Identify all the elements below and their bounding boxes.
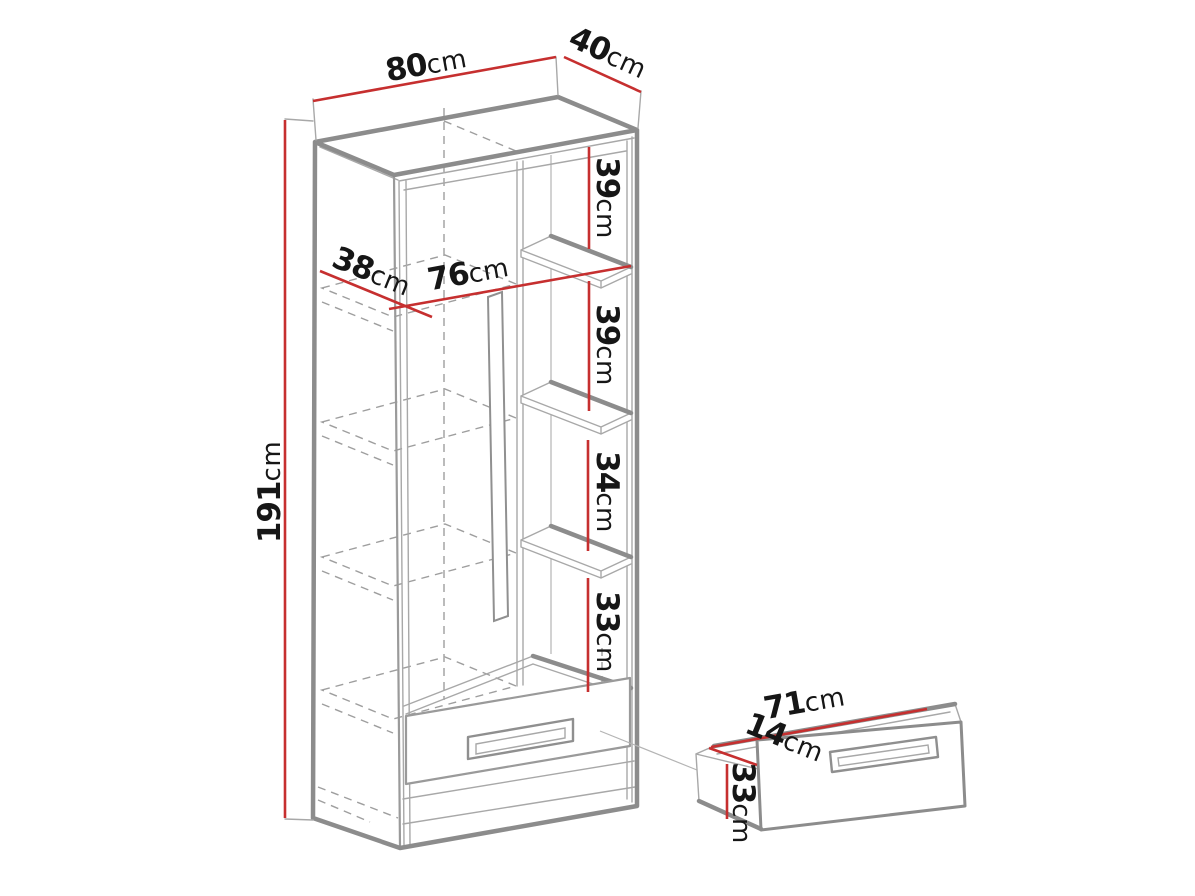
furniture-dimension-diagram: 80cm 40cm 191cm 38cm 76cm 39cm 39cm 34cm… [0,0,1195,896]
label-drawer-depth: 33cm [725,762,761,844]
label-gap-1: 39cm [589,157,625,239]
label-gap-3: 34cm [589,451,625,533]
label-overall-height: 191cm [252,441,288,543]
label-gap-2: 39cm [589,304,625,386]
label-gap-4: 33cm [589,591,625,673]
label-overall-width: 80cm [383,39,470,89]
